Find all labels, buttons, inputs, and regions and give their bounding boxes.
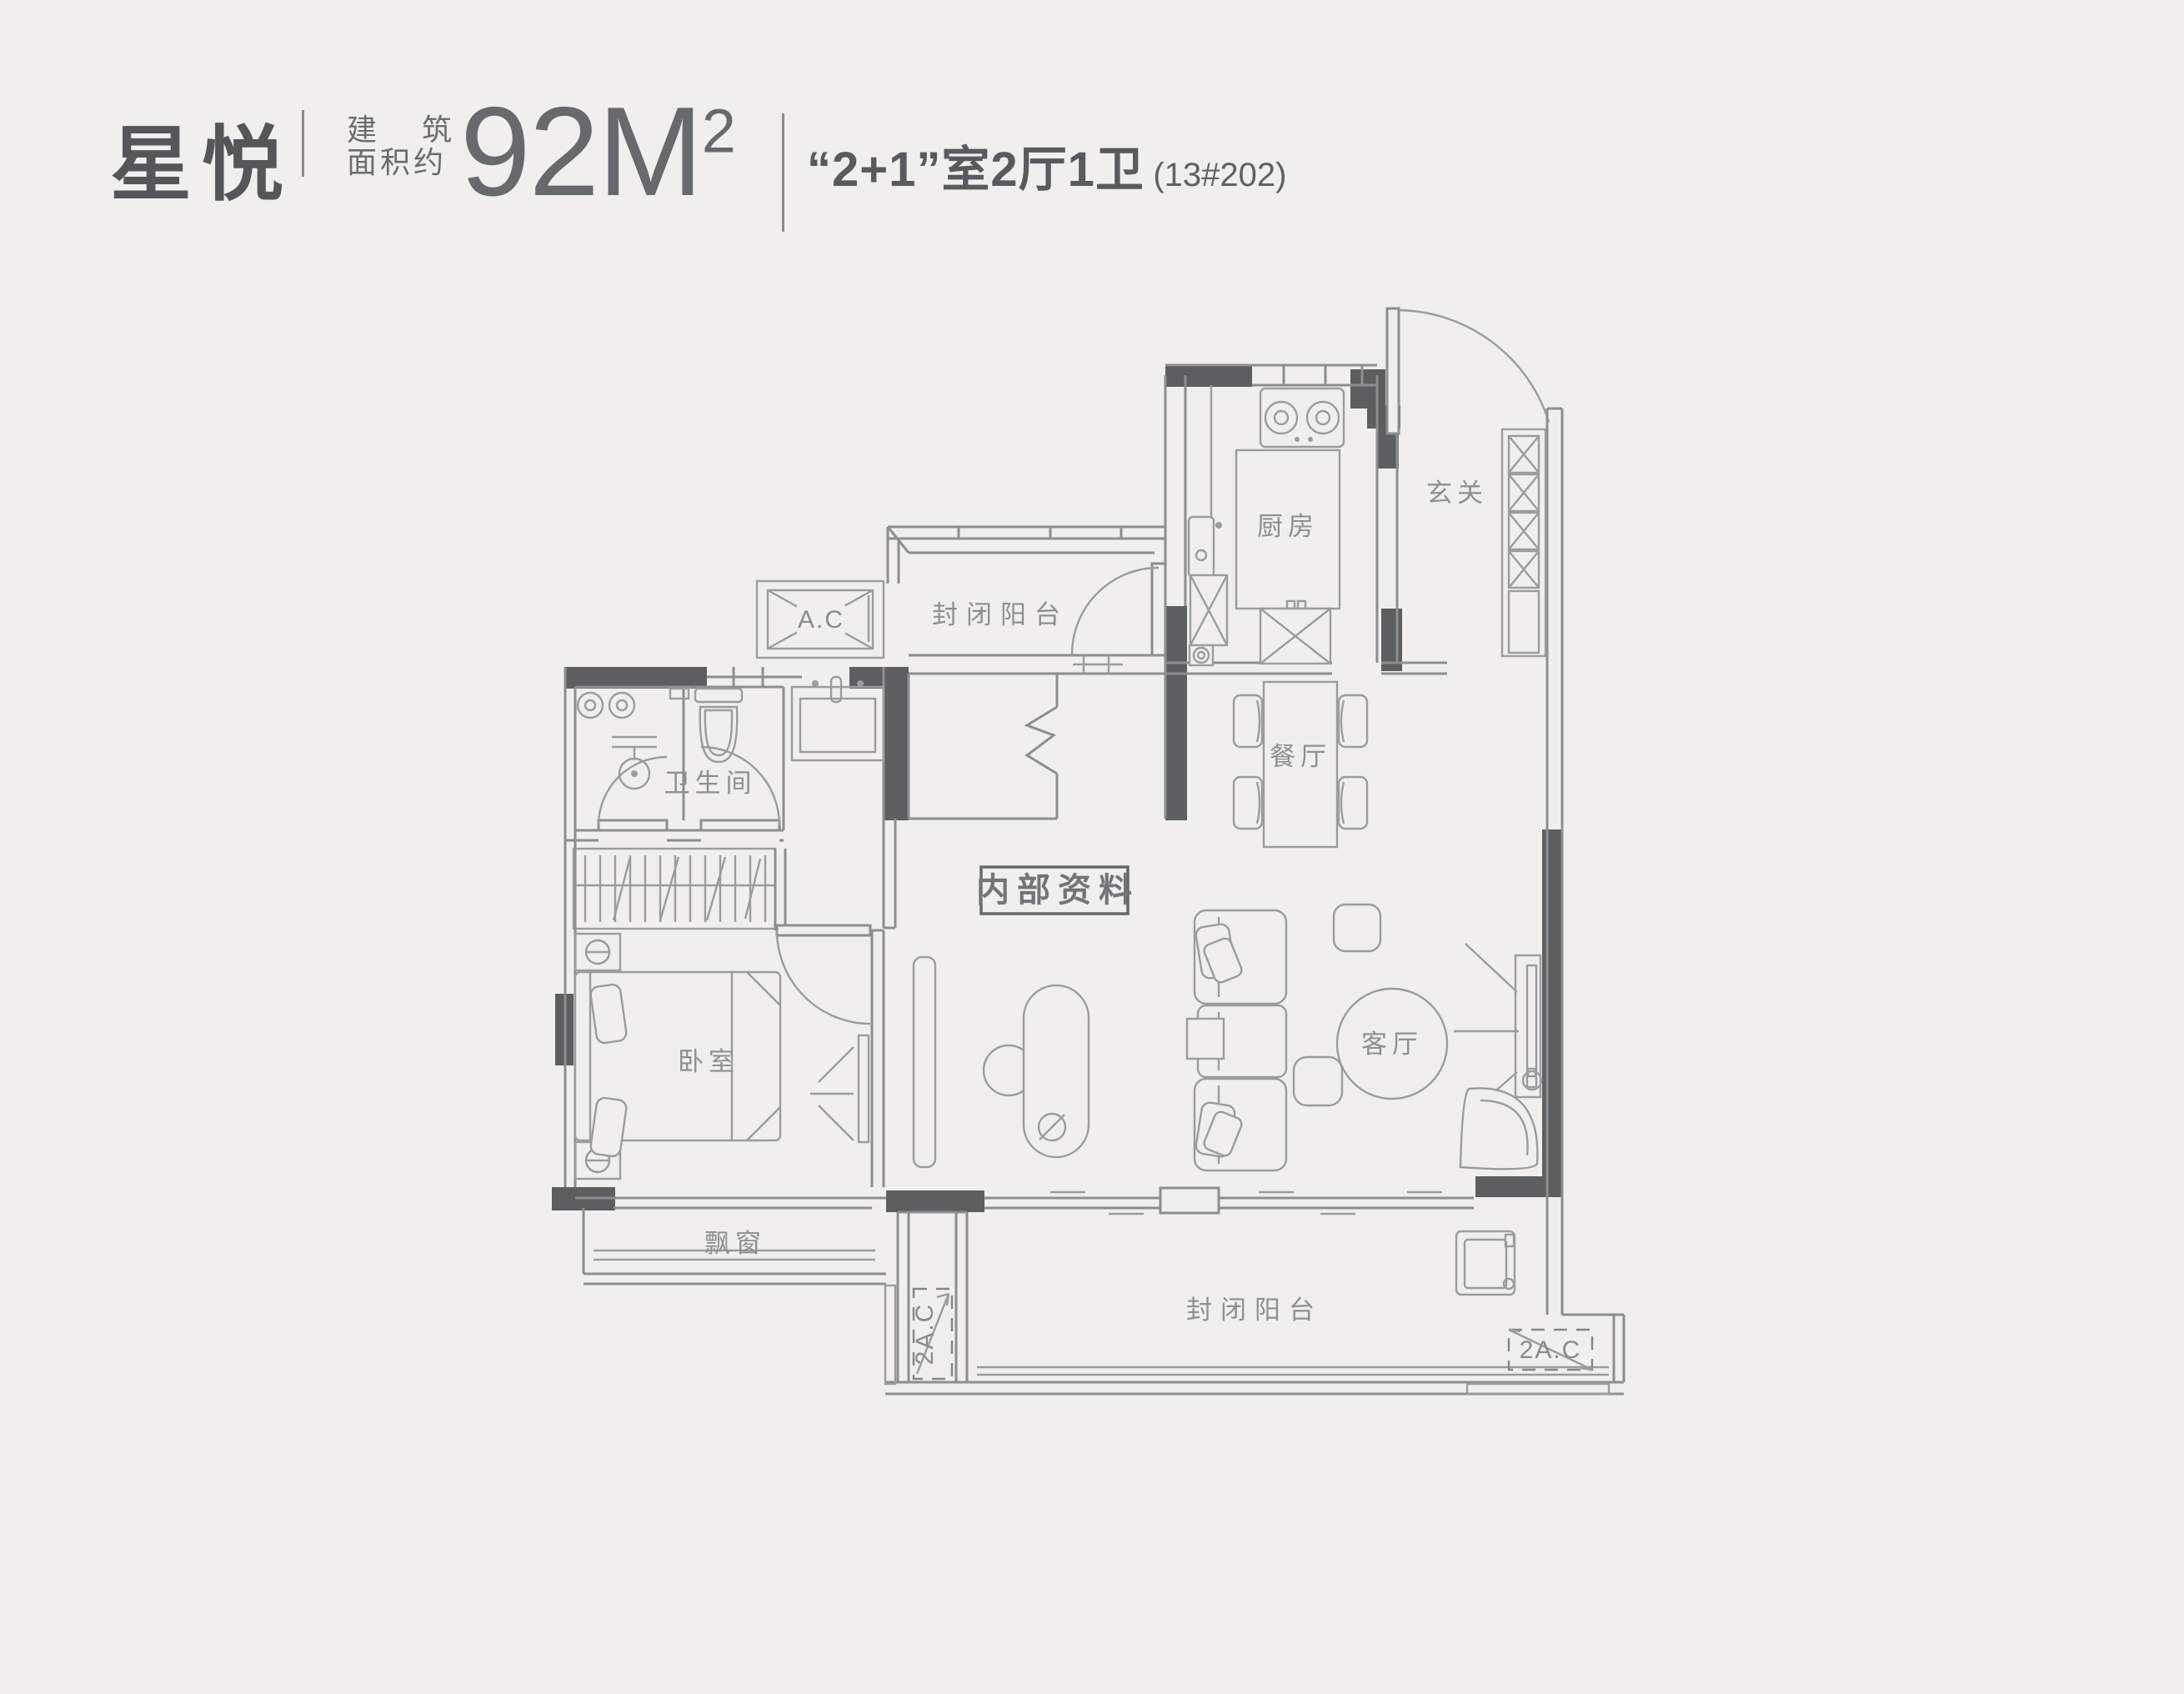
ac2-right: 2A.C	[1509, 1330, 1592, 1370]
shower-icon	[612, 737, 657, 789]
shower-door-leaf	[599, 820, 667, 830]
kitchen-sink-icon	[1189, 517, 1222, 577]
living-label: 客厅	[1361, 1030, 1423, 1059]
vanity-icon	[792, 677, 884, 760]
toilet-door-leaf	[701, 820, 779, 830]
sofa-side-table-icon	[1187, 1019, 1224, 1059]
hall-cabinet-icon	[914, 957, 935, 1167]
living-room: 客厅	[984, 905, 1541, 1214]
shoe-cabinet-icon	[1502, 429, 1545, 656]
bedroom-door-arc	[777, 930, 870, 1024]
stove-icon	[1260, 388, 1344, 447]
entry-door-arc	[1399, 310, 1549, 422]
corner-chair-icon	[1460, 1088, 1537, 1169]
sliding-panel-icon	[810, 1035, 869, 1142]
shower-door-arc	[599, 757, 667, 825]
floor-plan-page: 星悦 建 筑 面积约 92M2 “2+1”室2厅1卫 (13#202)	[0, 0, 2184, 1694]
balcony-sliding-doors	[984, 1198, 1474, 1208]
base-cabinet-icon	[1260, 601, 1330, 664]
stool-icon	[1334, 905, 1380, 951]
sofa-icon	[1187, 910, 1286, 1170]
bay-window: 飘窗	[575, 1198, 886, 1284]
balcony-top-label: 封闭阳台	[932, 600, 1069, 629]
ac2-left: 2A.C	[911, 1289, 952, 1379]
bathroom-label: 卫生间	[664, 769, 757, 798]
nightstand-icon	[575, 934, 620, 970]
washing-machine-icon	[1456, 1231, 1515, 1295]
toilet-icon	[670, 689, 742, 762]
desk-icon	[984, 985, 1089, 1157]
bay-window-label: 飘窗	[704, 1229, 766, 1258]
washbasin-icon	[578, 693, 634, 718]
entry-label: 玄关	[1426, 479, 1488, 508]
balcony-door-leaf	[1152, 564, 1165, 655]
kitchen-label: 厨房	[1257, 512, 1319, 541]
bedroom-door-leaf	[777, 925, 870, 935]
ac2-left-label: 2A.C	[911, 1303, 939, 1366]
bedroom-label: 卧室	[678, 1047, 739, 1076]
ac-label: A.C	[798, 606, 844, 634]
dining-label: 餐厅	[1270, 742, 1331, 771]
watermark-box: 内部资料	[976, 867, 1140, 914]
sliding-door-post	[1160, 1188, 1219, 1213]
ac2-right-label: 2A.C	[1520, 1336, 1582, 1364]
balcony-door-arc	[1072, 568, 1159, 654]
fridge-icon	[1190, 575, 1227, 665]
ac-unit-icon: A.C	[757, 581, 884, 658]
wardrobe-icon	[574, 849, 775, 929]
floor-plan-drawing: 厨房 玄关 封闭阳台	[0, 0, 2184, 1694]
balcony-bottom-label: 封闭阳台	[1186, 1296, 1323, 1325]
dining-room: 餐厅	[1234, 682, 1367, 847]
entry-door-leaf	[1387, 308, 1399, 434]
balcony-top: 封闭阳台 A.C	[757, 527, 1165, 674]
stool-icon	[1294, 1057, 1342, 1105]
watermark-text: 内部资料	[976, 872, 1140, 909]
balcony-bottom: 2A.C 2A.C 封闭阳台	[885, 1195, 1624, 1394]
